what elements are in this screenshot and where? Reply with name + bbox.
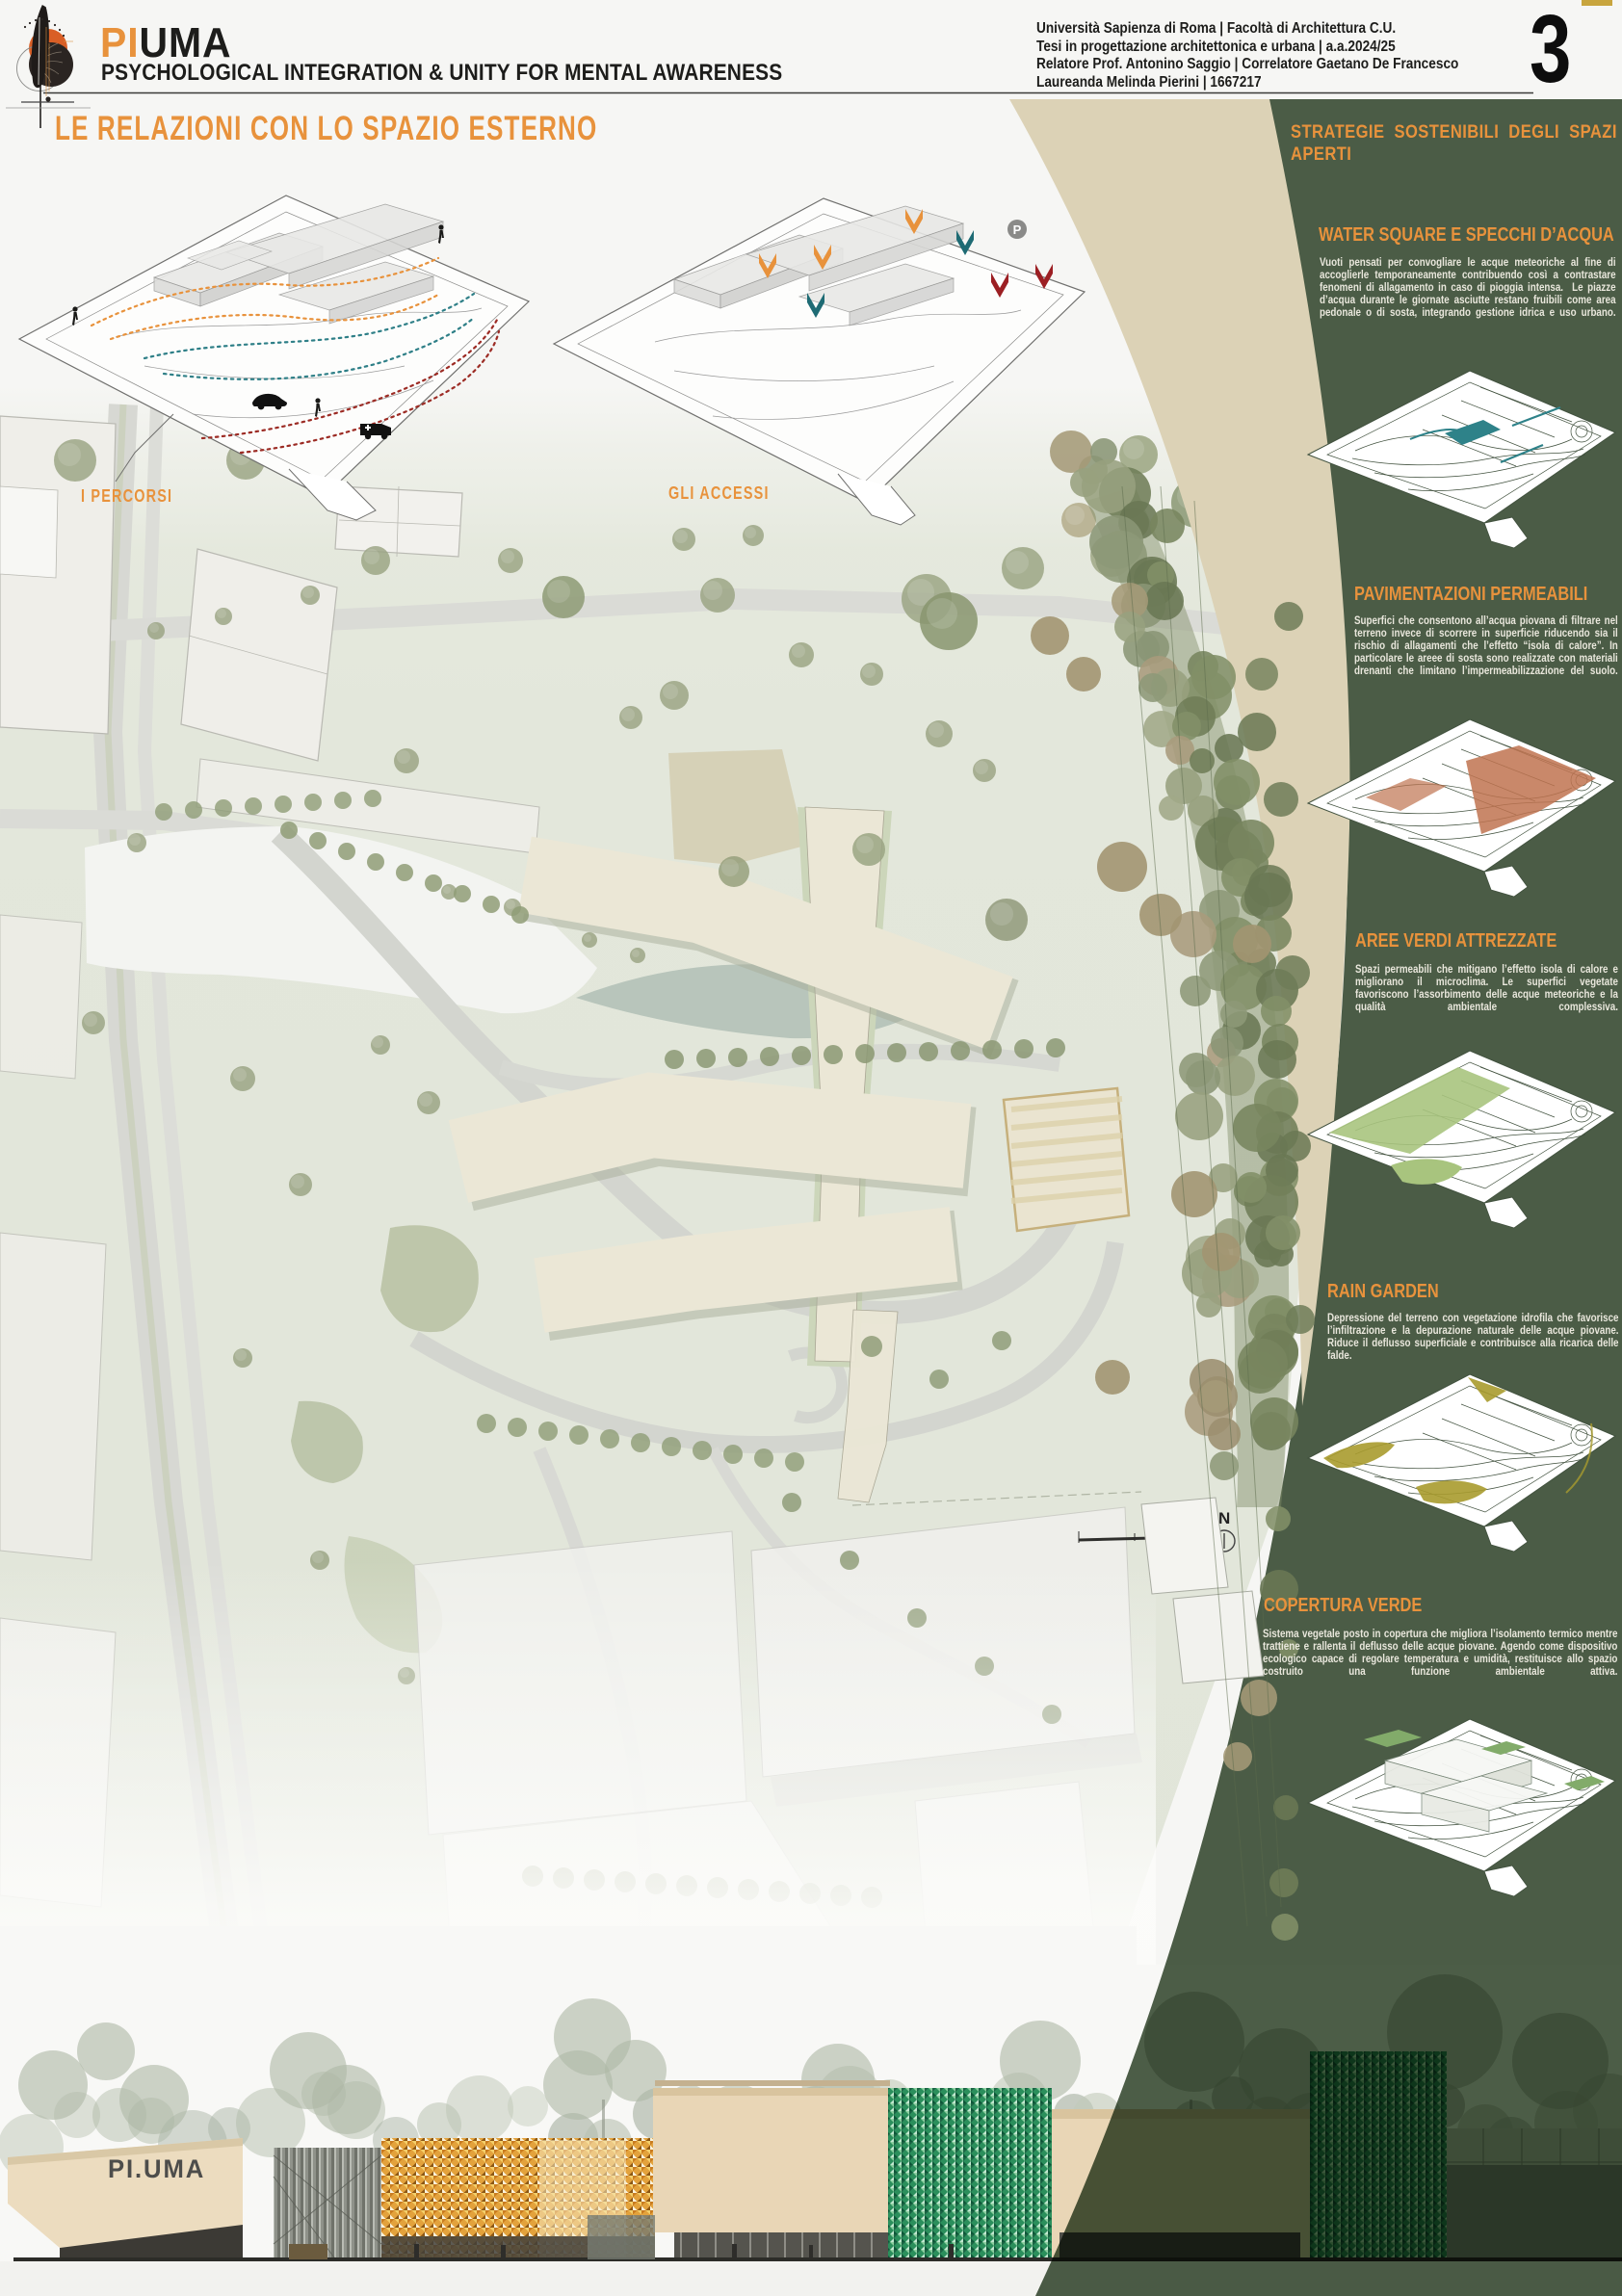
svg-text:N: N — [1218, 1509, 1230, 1527]
svg-text:P: P — [1013, 222, 1022, 237]
